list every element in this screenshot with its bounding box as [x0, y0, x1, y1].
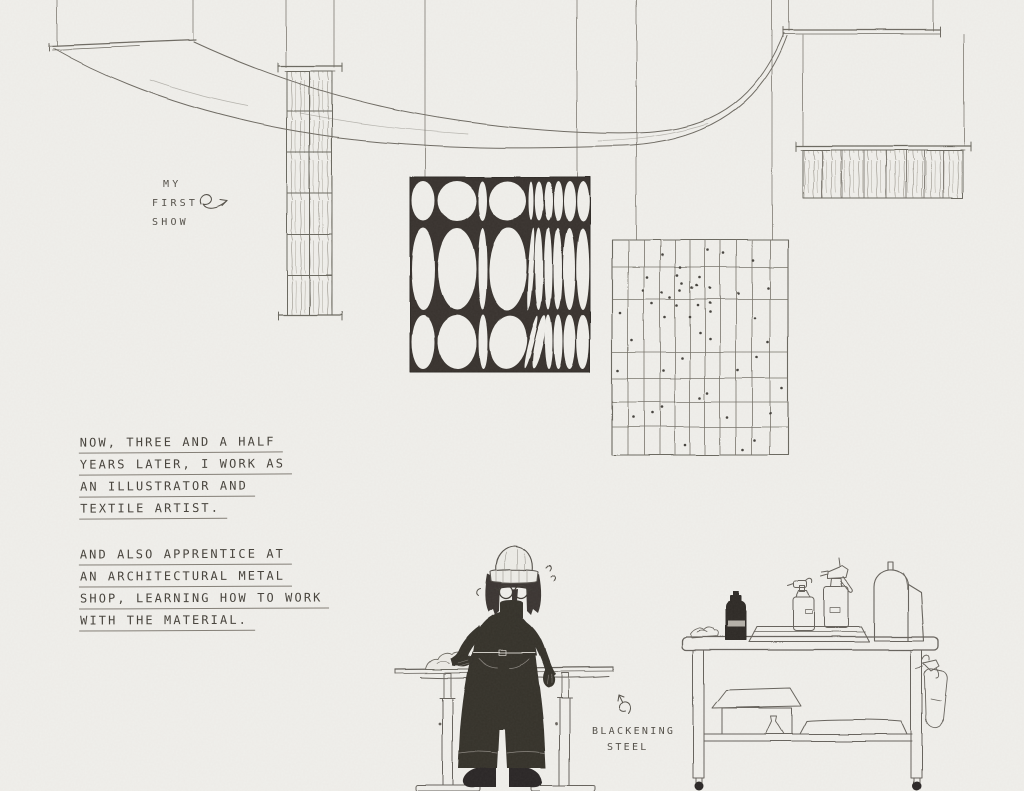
label-line: SHOW	[151, 217, 196, 229]
scene-artwork	[0, 0, 1024, 791]
note-line: YEARS LATER, I WORK AS	[79, 457, 292, 475]
label-line: BLACKENING	[591, 726, 682, 738]
note-line: AN ARCHITECTURAL METAL	[79, 570, 292, 588]
note-line: NOW, THREE AND A HALF	[79, 435, 283, 453]
note-line: WITH THE MATERIAL.	[79, 614, 255, 632]
label-blackening-steel: BLACKENING STEEL	[591, 726, 682, 758]
note-apprentice: AND ALSO APPRENTICE AT AN ARCHITECTURAL …	[79, 547, 330, 636]
note-career: NOW, THREE AND A HALF YEARS LATER, I WOR…	[79, 435, 293, 524]
note-line: AND ALSO APPRENTICE AT	[79, 548, 292, 566]
label-first-show: MY FIRST SHOW	[151, 179, 205, 236]
note-line: AN ILLUSTRATOR AND	[79, 480, 255, 498]
label-line: STEEL	[591, 742, 656, 754]
note-line: TEXTILE ARTIST.	[79, 502, 227, 520]
label-line: FIRST	[151, 198, 205, 210]
paper-grain-overlay	[0, 0, 1024, 791]
note-line: SHOP, LEARNING HOW TO WORK	[79, 591, 330, 609]
label-line: MY	[151, 179, 188, 191]
illustration-canvas: MY FIRST SHOW NOW, THREE AND A HALF YEAR…	[0, 0, 1024, 791]
